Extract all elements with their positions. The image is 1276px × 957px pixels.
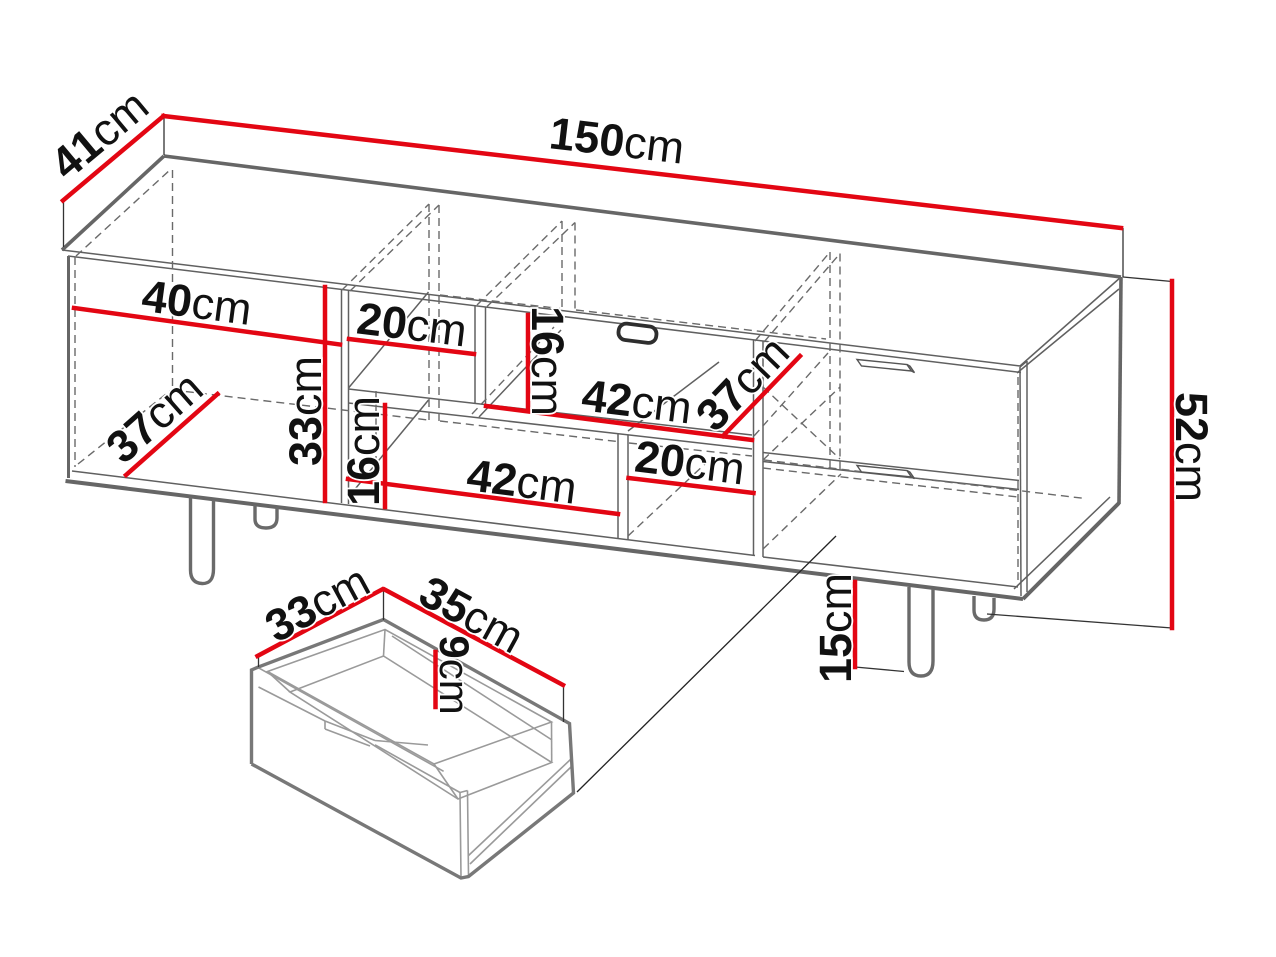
svg-text:52cm: 52cm [1166, 392, 1217, 502]
svg-text:9cm: 9cm [431, 635, 478, 714]
svg-text:16cm: 16cm [522, 306, 573, 416]
svg-text:33cm: 33cm [280, 356, 331, 466]
svg-text:15cm: 15cm [810, 573, 861, 683]
svg-text:16cm: 16cm [338, 396, 389, 506]
